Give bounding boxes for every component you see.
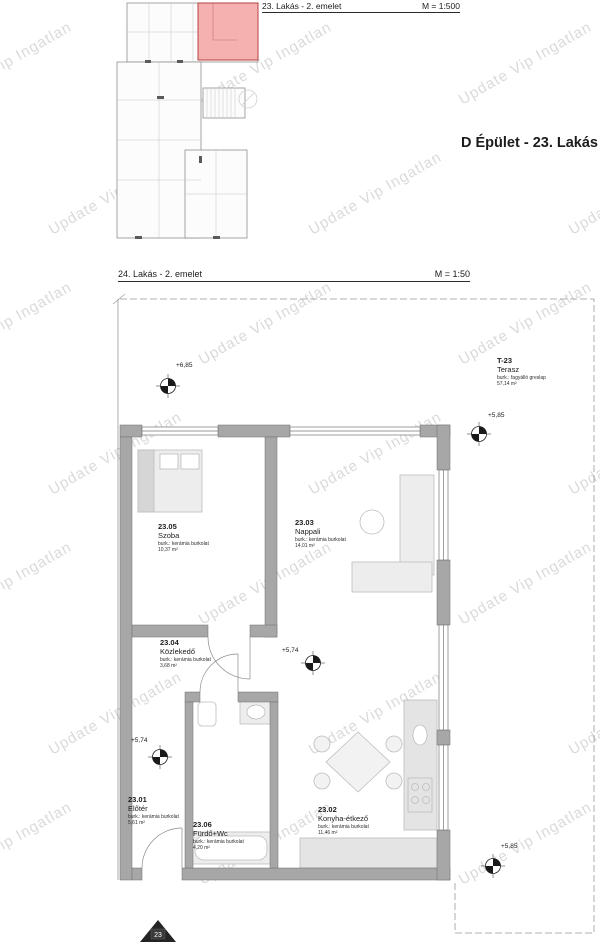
- room-label-eloter: 23.01 Előtér burk.: kerámia burkolat 5,6…: [128, 795, 179, 826]
- dining-table: [326, 732, 390, 792]
- building-title: D Épület - 23. Lakás: [420, 135, 598, 151]
- elevation-label: +6,85: [176, 362, 192, 369]
- room-name: Terasz: [497, 365, 546, 374]
- elevation-marker: [481, 854, 505, 878]
- elevation-marker: [467, 422, 491, 446]
- room-number: 23.02: [318, 805, 369, 814]
- room-label-szoba: 23.05 Szoba burk.: kerámia burkolat 10,3…: [158, 522, 209, 553]
- room-name: Közlekedő: [160, 647, 211, 656]
- room-label-kozlekedo: 23.04 Közlekedő burk.: kerámia burkolat …: [160, 638, 211, 669]
- elevation-label: +5,85: [501, 843, 517, 850]
- room-number: T-23: [497, 356, 546, 365]
- room-area: 11,46 m²: [318, 830, 369, 836]
- room-number: 23.06: [193, 820, 244, 829]
- room-name: Előtér: [128, 804, 179, 813]
- room-area: 5,61 m²: [128, 820, 179, 826]
- elevation-marker: [148, 745, 172, 769]
- keyplan-title: 23. Lakás - 2. emelet: [262, 1, 341, 11]
- room-label-nappali: 23.03 Nappali burk.: kerámia burkolat 14…: [295, 518, 346, 549]
- elevation-label: +5,74: [282, 647, 298, 654]
- keyplan-scale: M = 1:500: [422, 1, 460, 11]
- room-name: Nappali: [295, 527, 346, 536]
- room-area: 57,14 m²: [497, 381, 546, 387]
- room-label-konyha: 23.02 Konyha-étkező burk.: kerámia burko…: [318, 805, 369, 836]
- elevation-marker: [156, 374, 180, 398]
- room-number: 23.04: [160, 638, 211, 647]
- room-area: 4,20 m²: [193, 845, 244, 851]
- room-name: Szoba: [158, 531, 209, 540]
- room-number: 23.05: [158, 522, 209, 531]
- room-area: 3,68 m²: [160, 663, 211, 669]
- elevation-label: +5,85: [488, 412, 504, 419]
- room-number: 23.01: [128, 795, 179, 804]
- section-title: 24. Lakás - 2. emelet: [118, 269, 202, 279]
- keyplan-header: 23. Lakás - 2. emelet M = 1:500: [262, 1, 460, 13]
- elevation-label: +5,74: [131, 737, 147, 744]
- entrance-badge: 23: [154, 932, 162, 939]
- room-label-terasz: T-23 Terasz burk.: fagyálló greslap 57,1…: [497, 356, 546, 387]
- section-scale: M = 1:50: [435, 269, 470, 279]
- room-name: Konyha-étkező: [318, 814, 369, 823]
- floorplan-page: Update Vip IngatlanUpdate Vip IngatlanUp…: [0, 0, 600, 945]
- room-name: Fürdő+Wc: [193, 829, 244, 838]
- room-area: 14,01 m²: [295, 543, 346, 549]
- section-header: 24. Lakás - 2. emelet M = 1:50: [118, 269, 470, 282]
- room-number: 23.03: [295, 518, 346, 527]
- entrance-marker: 23: [136, 916, 180, 945]
- sofa: [400, 475, 434, 575]
- elevation-marker: [301, 651, 325, 675]
- room-label-furdo: 23.06 Fürdő+Wc burk.: kerámia burkolat 4…: [193, 820, 244, 851]
- room-area: 10,37 m²: [158, 547, 209, 553]
- toilet: [198, 702, 216, 726]
